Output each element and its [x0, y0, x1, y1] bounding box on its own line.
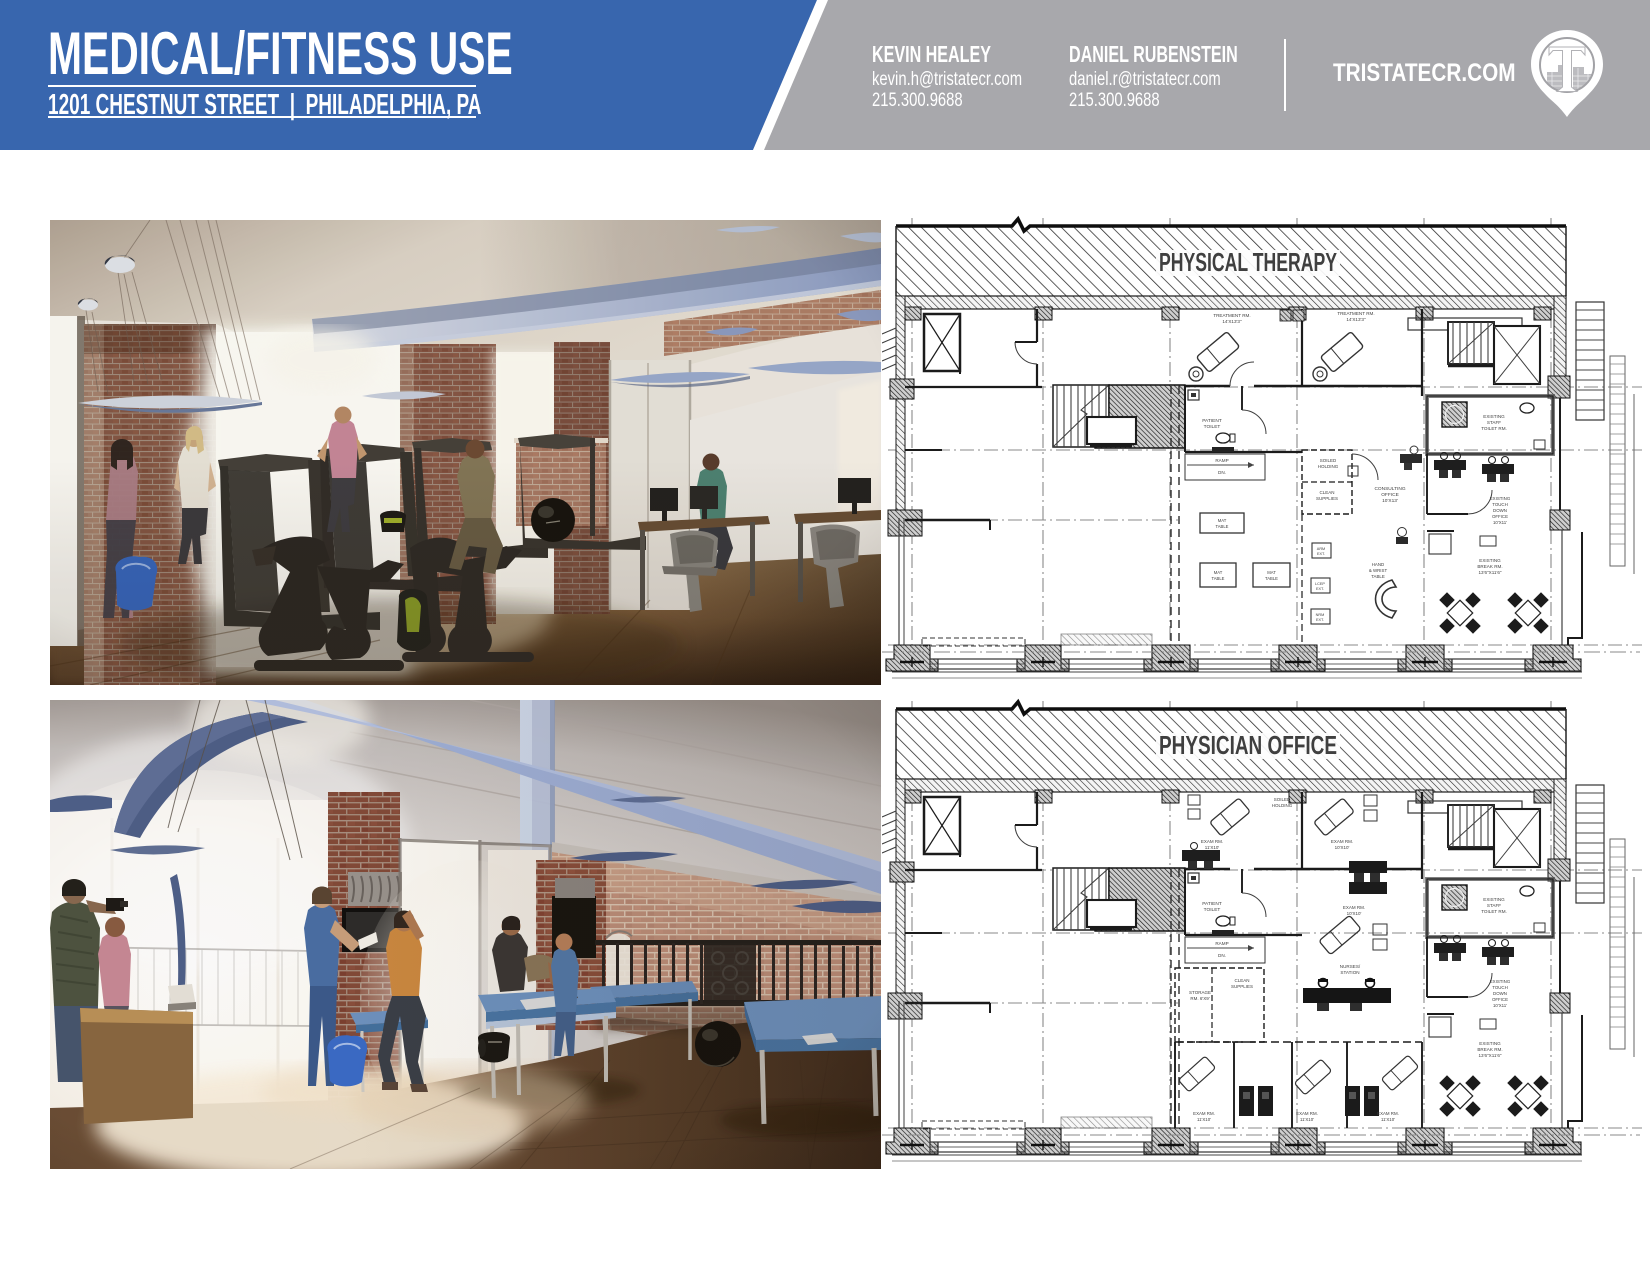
svg-text:SOILED: SOILED — [1320, 458, 1337, 463]
svg-text:EXISTING: EXISTING — [1479, 558, 1501, 563]
svg-text:DOWN: DOWN — [1493, 508, 1507, 513]
svg-text:10'X10': 10'X10' — [1347, 911, 1362, 916]
svg-text:EXAM RM.: EXAM RM. — [1331, 839, 1353, 844]
svg-text:EXISTING: EXISTING — [1490, 979, 1511, 984]
svg-text:CLEAN: CLEAN — [1234, 978, 1249, 983]
svg-text:HOLDING: HOLDING — [1318, 464, 1339, 469]
svg-text:TREATMENT RM.: TREATMENT RM. — [1213, 313, 1250, 318]
svg-text:10'X10': 10'X10' — [1335, 845, 1350, 850]
svg-text:STAFF: STAFF — [1487, 420, 1501, 425]
svg-text:PHYSICIAN OFFICE: PHYSICIAN OFFICE — [1159, 730, 1337, 760]
svg-text:TOILET: TOILET — [1204, 907, 1221, 913]
svg-text:EXT.: EXT. — [1317, 552, 1325, 556]
svg-text:BREAK RM.: BREAK RM. — [1477, 564, 1502, 569]
svg-text:EXAM RM.: EXAM RM. — [1377, 1111, 1399, 1116]
svg-text:RAMP: RAMP — [1215, 941, 1228, 946]
svg-text:MAT: MAT — [1267, 570, 1276, 575]
svg-text:OFFICE: OFFICE — [1492, 997, 1508, 1002]
svg-text:LCEP: LCEP — [1315, 582, 1325, 586]
svg-text:OFFICE: OFFICE — [1381, 492, 1399, 498]
svg-text:TOILET RM.: TOILET RM. — [1481, 426, 1507, 431]
svg-text:CLEAN: CLEAN — [1319, 490, 1334, 495]
svg-text:11'X10': 11'X10' — [1197, 1117, 1211, 1122]
svg-text:PATIENT: PATIENT — [1202, 418, 1222, 424]
svg-text:NURSES/: NURSES/ — [1340, 964, 1361, 969]
svg-text:EXISTING: EXISTING — [1483, 414, 1505, 419]
svg-text:NRM: NRM — [1316, 613, 1325, 617]
svg-text:TOUCH: TOUCH — [1492, 985, 1508, 990]
svg-text:EXISTING: EXISTING — [1483, 897, 1505, 902]
svg-text:DN.: DN. — [1218, 470, 1226, 475]
svg-text:EXISTING: EXISTING — [1479, 1041, 1501, 1046]
svg-text:EXAM RM.: EXAM RM. — [1193, 1111, 1215, 1116]
svg-text:EXAM RM.: EXAM RM. — [1296, 1111, 1318, 1116]
svg-text:PHYSICAL THERAPY: PHYSICAL THERAPY — [1159, 247, 1337, 277]
svg-text:BREAK RM.: BREAK RM. — [1477, 1047, 1502, 1052]
svg-text:10'X11': 10'X11' — [1493, 520, 1507, 525]
svg-text:13'6"X11'6": 13'6"X11'6" — [1478, 570, 1501, 575]
svg-text:HAND: HAND — [1372, 562, 1384, 567]
svg-text:DOWN: DOWN — [1493, 991, 1507, 996]
svg-text:13'6"X11'6": 13'6"X11'6" — [1478, 1053, 1501, 1058]
svg-text:TOILET: TOILET — [1204, 424, 1221, 430]
svg-text:MAT: MAT — [1214, 570, 1223, 575]
svg-text:EXT.: EXT. — [1316, 618, 1324, 622]
svg-text:SOILED: SOILED — [1274, 797, 1291, 802]
svg-text:10'X13': 10'X13' — [1382, 498, 1398, 504]
svg-text:TABLE: TABLE — [1265, 576, 1278, 581]
svg-text:EXAM RM.: EXAM RM. — [1343, 905, 1365, 910]
svg-text:TABLE: TABLE — [1216, 524, 1229, 529]
svg-text:TABLE: TABLE — [1371, 574, 1385, 579]
svg-text:TREATMENT RM.: TREATMENT RM. — [1337, 311, 1374, 316]
svg-text:RAMP: RAMP — [1215, 458, 1228, 463]
svg-text:14'X13'3": 14'X13'3" — [1222, 319, 1242, 324]
svg-text:11'X10': 11'X10' — [1205, 845, 1220, 850]
svg-text:STAFF: STAFF — [1487, 903, 1501, 908]
svg-text:CONSULTING: CONSULTING — [1374, 486, 1405, 492]
svg-text:& WRIST: & WRIST — [1369, 568, 1388, 573]
svg-text:TOILET RM.: TOILET RM. — [1481, 909, 1507, 914]
svg-text:10'X11': 10'X11' — [1493, 1003, 1507, 1008]
svg-text:SUPPLIES: SUPPLIES — [1316, 496, 1338, 501]
svg-text:TABLE: TABLE — [1212, 576, 1225, 581]
svg-text:14'X13'3": 14'X13'3" — [1346, 317, 1366, 322]
svg-text:EXT.: EXT. — [1316, 587, 1324, 591]
svg-text:HOLDING: HOLDING — [1272, 803, 1293, 808]
svg-text:STORAGE: STORAGE — [1189, 990, 1211, 995]
svg-text:STATION: STATION — [1340, 970, 1359, 975]
svg-text:SUPPLIES: SUPPLIES — [1231, 984, 1253, 989]
svg-text:EXAM RM.: EXAM RM. — [1201, 839, 1223, 844]
svg-text:MAT: MAT — [1218, 518, 1227, 523]
svg-text:RM. 6'X9': RM. 6'X9' — [1190, 996, 1209, 1001]
svg-text:TOUCH: TOUCH — [1492, 502, 1508, 507]
svg-text:EXISTING: EXISTING — [1490, 496, 1511, 501]
svg-text:DN.: DN. — [1218, 953, 1226, 958]
svg-text:OFFICE: OFFICE — [1492, 514, 1508, 519]
svg-text:ARM: ARM — [1317, 547, 1325, 551]
svg-text:11'X10': 11'X10' — [1300, 1117, 1314, 1122]
svg-text:PATIENT: PATIENT — [1202, 901, 1222, 907]
svg-text:11'X10': 11'X10' — [1381, 1117, 1395, 1122]
